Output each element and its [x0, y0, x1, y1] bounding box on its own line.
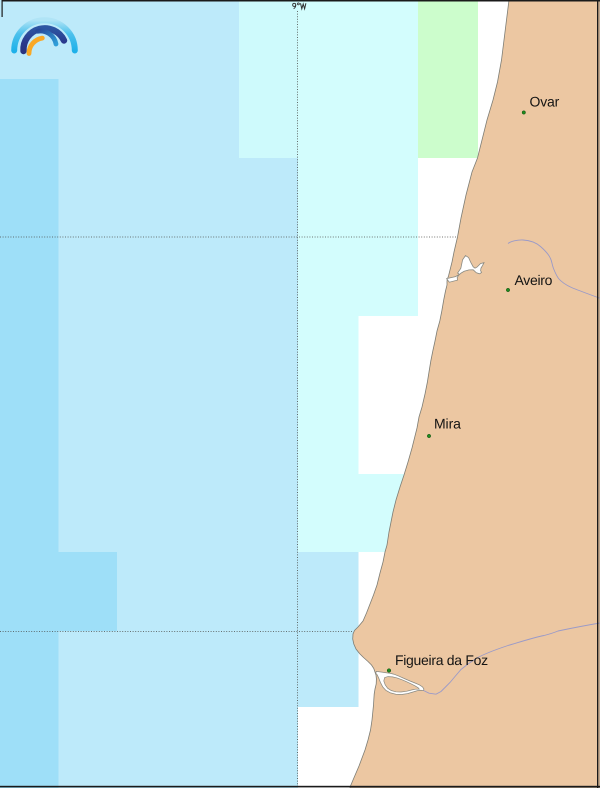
- svg-text:Mira: Mira: [434, 416, 461, 432]
- svg-text:Figueira da Foz: Figueira da Foz: [395, 652, 488, 668]
- svg-text:Ovar: Ovar: [530, 94, 560, 110]
- svg-text:Aveiro: Aveiro: [515, 272, 553, 288]
